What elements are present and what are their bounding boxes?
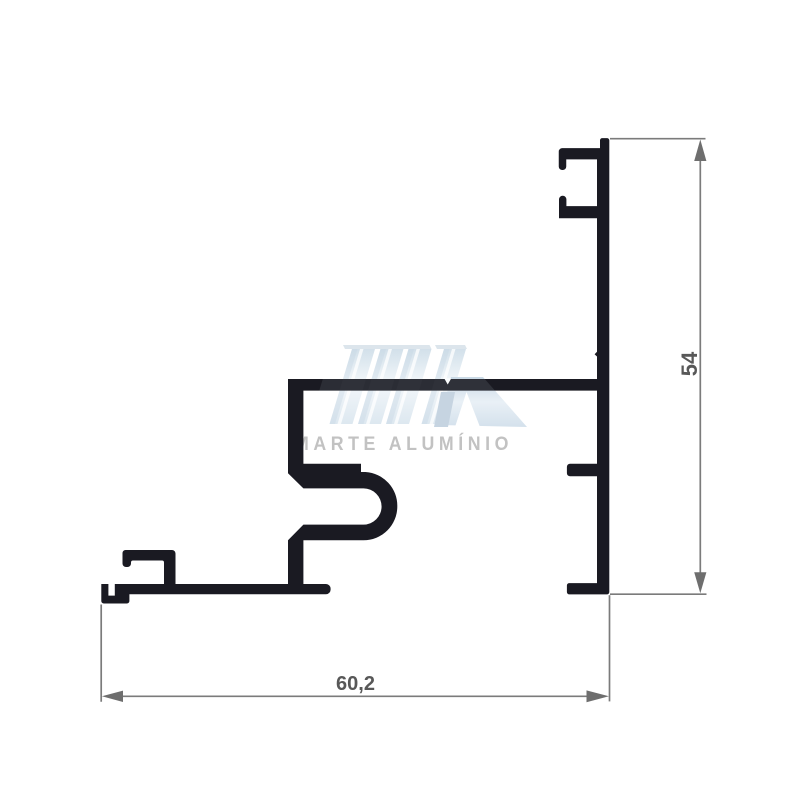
svg-text:MARTE ALUMÍNIO: MARTE ALUMÍNIO (294, 432, 513, 455)
svg-text:54: 54 (677, 351, 702, 376)
svg-text:60,2: 60,2 (336, 673, 375, 695)
